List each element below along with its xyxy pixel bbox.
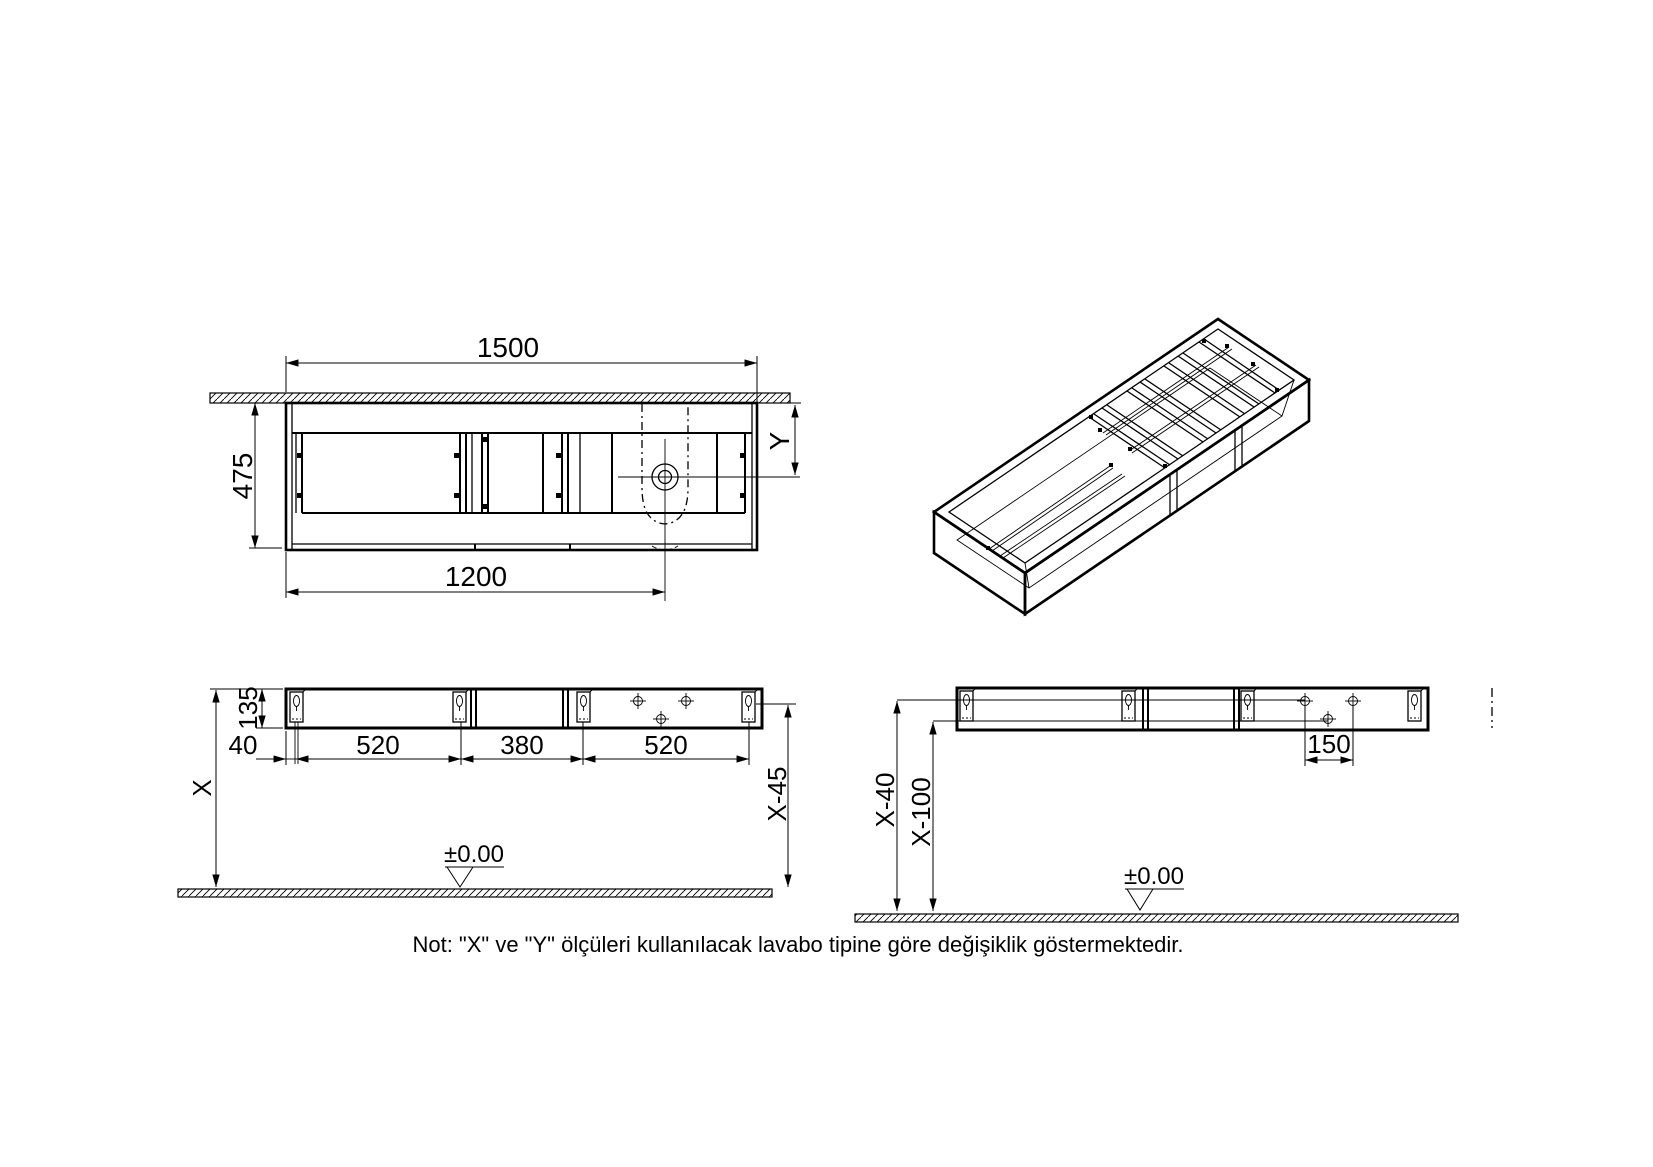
- bracket: [1241, 688, 1258, 722]
- dim-label-hole-spacing: 150: [1307, 729, 1350, 759]
- drill-holes-left: [630, 693, 694, 727]
- dim-label-width: 1500: [477, 332, 539, 363]
- cabinet-outline: [286, 403, 757, 550]
- dim-label-slot-hole-height: X-40: [870, 773, 900, 828]
- drill-holes-right: [1297, 693, 1361, 727]
- dim-label-span2: 380: [500, 730, 543, 760]
- iso-interior-floor: [957, 368, 1282, 588]
- ground-line-left: [178, 889, 772, 897]
- dim-label-drain-hole-height: X-100: [906, 777, 936, 846]
- bracket: [742, 689, 759, 723]
- iso-drawer-slides: [989, 466, 1125, 558]
- wall-brackets-right: [960, 688, 1425, 722]
- iso-top-face: [934, 319, 1309, 573]
- bracket: [960, 688, 977, 722]
- dim-label-edge-offset: 40: [229, 730, 258, 760]
- bracket: [453, 689, 470, 723]
- datum-triangle-right: [1127, 889, 1153, 910]
- dim-label-hole-height: X-45: [762, 767, 792, 822]
- hanging-rail-panel-right: [957, 688, 1428, 730]
- plan-view: 1500 475 1200 Y: [210, 332, 801, 601]
- iso-drawer-seams: [1170, 425, 1242, 516]
- iso-left-face: [934, 512, 1025, 614]
- dim-label-span3: 520: [644, 730, 687, 760]
- iso-front-face: [1025, 380, 1309, 614]
- hanging-rail-panel: [286, 689, 762, 728]
- datum-triangle-left: [447, 867, 473, 887]
- datum-label-left: ±0.00: [444, 841, 504, 868]
- footnote: Not: "X" ve "Y" ölçüleri kullanılacak la…: [412, 932, 1183, 957]
- ground-line-right: [855, 914, 1458, 922]
- vanity-installation-drawing: 1500 475 1200 Y: [0, 0, 1653, 1167]
- dim-label-panel-height: 135: [233, 686, 263, 729]
- bracket: [290, 689, 307, 723]
- dim-label-mount-height: X: [187, 779, 217, 796]
- dim-label-span1: 520: [356, 730, 399, 760]
- dim-label-drain-depth: Y: [764, 431, 795, 450]
- elevation-left: 135 X 40 520 380 520 X-45 ±0.00: [178, 686, 796, 897]
- wall-section-hatch: [210, 393, 790, 403]
- isometric-view: [934, 319, 1309, 614]
- bracket: [1408, 688, 1425, 722]
- datum-label-right: ±0.00: [1124, 863, 1184, 890]
- cabinet-dividers: [296, 433, 745, 551]
- dim-label-drain-offset: 1200: [445, 561, 507, 592]
- elevation-right: X-40 X-100 150 ±0.00: [855, 688, 1492, 923]
- bracket: [577, 689, 594, 723]
- bracket: [1122, 688, 1139, 722]
- technical-drawing-page: 1500 475 1200 Y: [0, 0, 1653, 1167]
- dim-label-depth: 475: [227, 453, 258, 500]
